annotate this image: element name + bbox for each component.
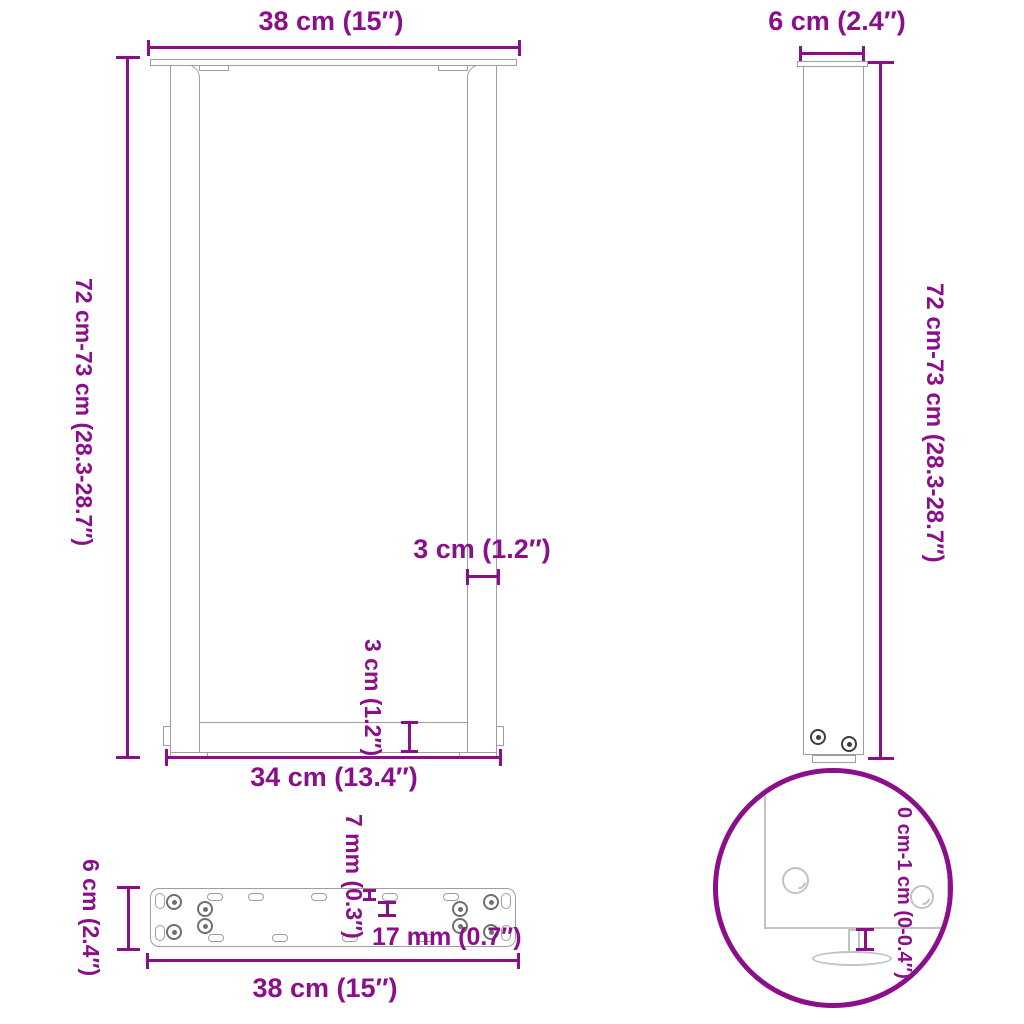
dimension-tick <box>147 40 150 56</box>
dimension-diagram: 38 cm (15″) 72 cm-73 cm (28.3-28.7″) 3 c… <box>0 0 1024 1024</box>
front-width-label: 38 cm (15″) <box>231 7 431 37</box>
slot <box>155 893 165 909</box>
dimension-tick <box>868 757 894 760</box>
plate-clip-right <box>438 65 468 71</box>
plate-width-label: 38 cm (15″) <box>225 974 425 1004</box>
screw-hole <box>452 901 468 917</box>
dimension-line <box>126 56 129 759</box>
dimension-tick <box>497 569 500 585</box>
screw-hole <box>166 894 182 910</box>
slot <box>382 893 398 901</box>
plate-depth-label: 6 cm (2.4″) <box>76 856 102 980</box>
side-height-label: 72 cm-73 cm (28.3-28.7″) <box>920 268 946 578</box>
side-depth-label: 6 cm (2.4″) <box>737 7 937 37</box>
slot <box>272 934 288 942</box>
dimension-tick <box>116 56 140 59</box>
dimension-tick <box>862 46 865 61</box>
leg-column <box>803 66 864 755</box>
adjustable-height-label: 0 cm-1 cm (0-0.4″) <box>890 799 914 987</box>
dimension-line <box>408 722 411 753</box>
dimension-tick <box>518 40 521 56</box>
screw-hole <box>197 901 213 917</box>
slot-width-label: 7 mm (0.3″) <box>339 806 365 946</box>
screw-hole <box>197 918 213 934</box>
dimension-tick <box>363 889 376 892</box>
mounting-plate-edge <box>797 61 868 67</box>
crossbar-thickness-label: 3 cm (1.2″) <box>358 636 384 760</box>
slot <box>501 893 511 909</box>
slot-length-label: 17 mm (0.7″) <box>372 924 522 952</box>
dimension-tick <box>517 953 520 969</box>
dimension-line <box>127 888 130 950</box>
leg-thickness-label: 3 cm (1.2″) <box>382 535 582 565</box>
dimension-line <box>147 46 521 49</box>
dimension-tick <box>401 721 418 724</box>
dimension-tick <box>146 953 149 969</box>
screw-hole <box>166 924 182 940</box>
front-inner-width-label: 34 cm (13.4″) <box>234 763 434 793</box>
detail-view-circle: 0 cm-1 cm (0-0.4″) <box>713 768 953 1008</box>
dimension-tick <box>117 948 140 951</box>
dimension-tick <box>499 749 502 766</box>
dimension-tick <box>856 928 874 931</box>
screw-hole <box>483 894 499 910</box>
slot <box>248 893 264 901</box>
dimension-tick <box>116 756 140 759</box>
adjuster-foot <box>812 951 892 966</box>
dimension-line <box>799 52 865 55</box>
dimension-tick <box>117 886 140 889</box>
dimension-tick <box>799 46 802 61</box>
dimension-tick <box>856 948 874 951</box>
slot <box>207 893 223 901</box>
slot <box>311 893 327 901</box>
leg-left <box>170 64 200 753</box>
dimension-line <box>466 575 500 578</box>
leg-right <box>467 64 497 753</box>
dimension-tick <box>401 750 418 753</box>
dimension-tick <box>378 901 396 904</box>
slot <box>208 934 224 942</box>
screw-icon <box>841 736 857 752</box>
dimension-line <box>165 756 502 759</box>
dimension-line <box>146 959 520 962</box>
dimension-tick <box>363 898 376 901</box>
screw-icon <box>810 729 826 745</box>
dimension-line <box>879 62 882 760</box>
dimension-tick <box>466 569 469 585</box>
crossbar <box>180 722 487 753</box>
foot-pad <box>812 755 856 763</box>
dimension-tick <box>165 749 168 766</box>
plate-clip-left <box>199 65 229 71</box>
front-height-label: 72 cm-73 cm (28.3-28.7″) <box>69 272 95 552</box>
slot <box>443 893 459 901</box>
slot <box>155 925 165 941</box>
dimension-tick <box>868 61 894 64</box>
dimension-tick <box>378 914 396 917</box>
